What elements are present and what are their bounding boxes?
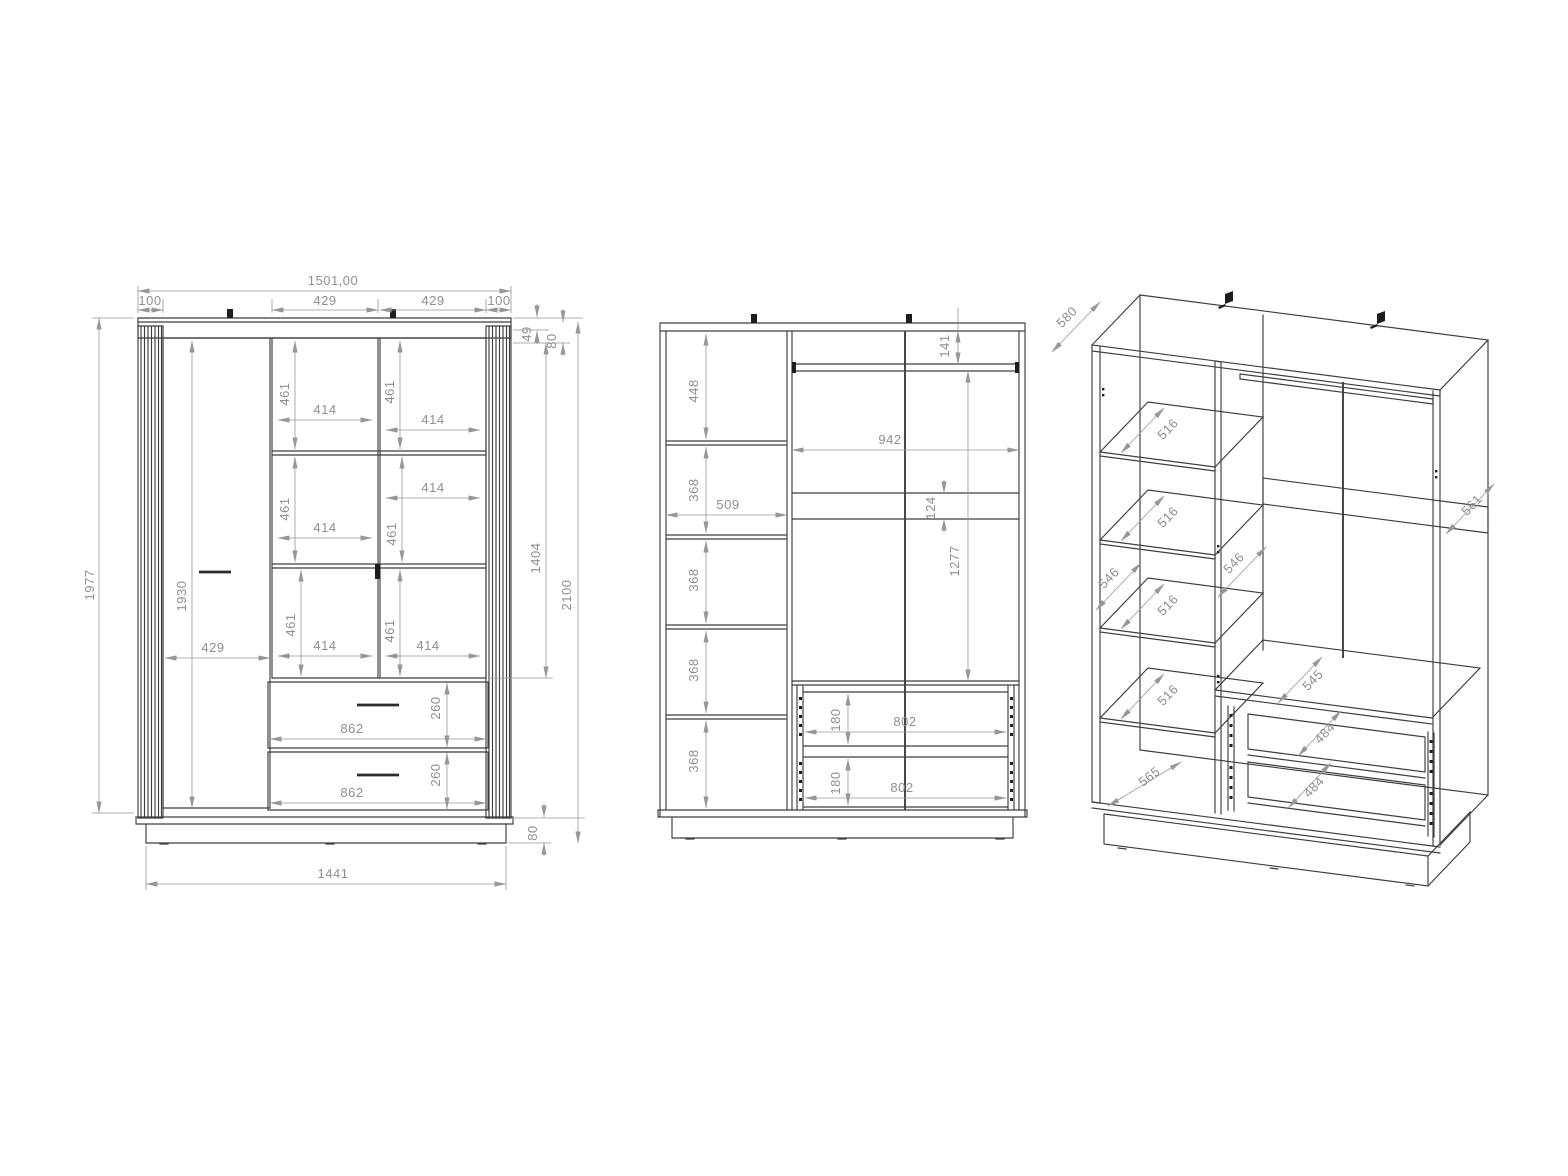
wardrobe-technical-drawing: 1501,00 100 429 429 100 49 80 1977 1930 … — [0, 0, 1568, 1176]
dim-top-inset: 49 — [519, 326, 534, 341]
dim-base-width: 1441 — [318, 866, 349, 881]
back-rail — [1263, 478, 1488, 533]
dim-cell-h: 461 — [277, 382, 292, 405]
dim-segment: 429 — [313, 293, 336, 308]
dim-compartment: 448 — [686, 379, 701, 402]
dim-segment: 100 — [487, 293, 510, 308]
isometric-structure — [1092, 295, 1488, 886]
drawer-fronts — [268, 682, 488, 810]
dim-partition-depth: 546 — [1220, 549, 1247, 576]
isometric-view: 580 516 516 516 516 546 546 565 545 484 … — [1052, 291, 1494, 886]
dim-drawer-h: 180 — [828, 708, 843, 731]
dim-right-panel-depth: 561 — [1458, 491, 1485, 518]
hanging-rod — [1240, 374, 1433, 404]
dim-drawer-h: 260 — [428, 763, 443, 786]
dim-cell-h: 461 — [382, 619, 397, 642]
wall-bracket-icon — [751, 314, 757, 323]
dim-compartment: 368 — [686, 478, 701, 501]
internal-view-dimensions: 448 368 368 368 368 509 141 942 124 1277… — [666, 308, 1019, 808]
wall-bracket-icon — [906, 314, 912, 323]
dim-drawer-shelf-depth: 545 — [1299, 666, 1326, 693]
pillar-left — [138, 326, 163, 818]
dim-door-height: 1930 — [174, 581, 189, 612]
dim-cell-w: 414 — [313, 520, 336, 535]
dim-segment: 100 — [138, 293, 161, 308]
dim-cell-w: 414 — [416, 638, 439, 653]
dim-drawer-h: 260 — [428, 696, 443, 719]
dim-shelf-depth: 516 — [1154, 503, 1181, 530]
dim-drawer-w: 802 — [890, 780, 913, 795]
dim-left-door-width: 429 — [201, 640, 224, 655]
dim-drawer-h: 180 — [828, 771, 843, 794]
dim-cell-h: 461 — [384, 522, 399, 545]
drawer-slide-dots — [1102, 388, 1437, 825]
internal-view-structure — [658, 323, 1027, 839]
dim-rod-offset: 141 — [937, 334, 952, 357]
dim-drawer-w: 862 — [340, 785, 363, 800]
front-view: 1501,00 100 429 429 100 49 80 1977 1930 … — [82, 273, 585, 890]
dim-drawer-w: 802 — [893, 714, 916, 729]
dim-rail-height: 124 — [923, 496, 938, 519]
dim-interior-width: 942 — [878, 432, 901, 447]
dim-cell-h: 461 — [382, 380, 397, 403]
dim-total-width: 1501,00 — [308, 273, 359, 288]
dim-cell-h: 461 — [283, 613, 298, 636]
dim-rod-to-drawer: 1277 — [947, 546, 962, 577]
internal-view: 448 368 368 368 368 509 141 942 124 1277… — [658, 308, 1027, 839]
dim-drawer-depth: 484 — [1300, 773, 1327, 800]
dim-compartment: 368 — [686, 658, 701, 681]
center-door-handle — [375, 564, 380, 579]
front-view-structure — [136, 318, 513, 844]
dim-top-panel: 80 — [544, 333, 559, 348]
dim-compartment: 368 — [686, 749, 701, 772]
dim-shelf-depth: 516 — [1154, 681, 1181, 708]
dim-base-height: 80 — [525, 825, 540, 840]
right-doors — [272, 338, 486, 678]
dim-compartment: 368 — [686, 568, 701, 591]
rod-bracket-icon — [792, 362, 796, 373]
dim-column-width: 509 — [716, 497, 739, 512]
pillar-right — [486, 326, 511, 818]
dim-cell-w: 414 — [421, 412, 444, 427]
dim-cell-h: 461 — [277, 497, 292, 520]
dim-height-total: 2100 — [559, 580, 574, 611]
dim-drawer-w: 862 — [340, 721, 363, 736]
wall-bracket-icon — [227, 309, 233, 318]
drawing-canvas: 1501,00 100 429 429 100 49 80 1977 1930 … — [0, 0, 1568, 1176]
dim-floor-depth: 565 — [1135, 763, 1163, 789]
dim-shelf-depth: 516 — [1154, 415, 1181, 442]
dim-segment: 429 — [421, 293, 444, 308]
dim-cell-w: 414 — [313, 638, 336, 653]
dim-cell-w: 414 — [313, 402, 336, 417]
dim-cell-w: 414 — [421, 480, 444, 495]
dim-door-section-height: 1404 — [528, 543, 543, 574]
dim-shelf-depth: 516 — [1154, 591, 1181, 618]
dim-drawer-depth: 484 — [1311, 719, 1338, 746]
rod-bracket-icon — [1015, 362, 1019, 373]
dim-height-overall: 1977 — [82, 570, 97, 601]
